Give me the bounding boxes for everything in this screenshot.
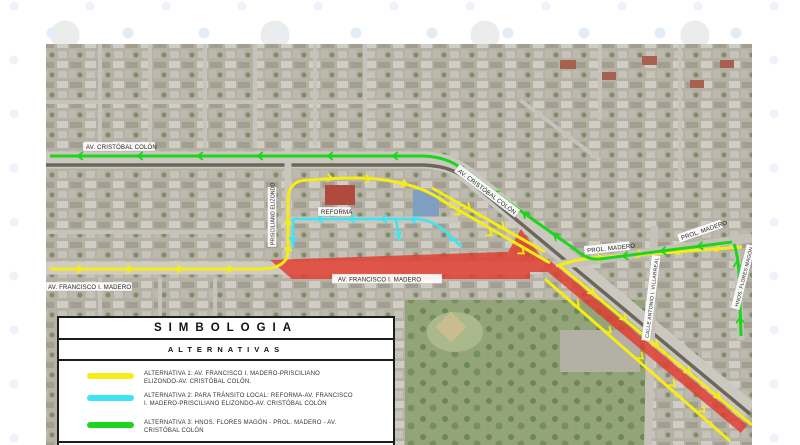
street-label-prisciliano-elizondo: PRISCILIANO ELIZONDO bbox=[268, 182, 277, 247]
street-label-reforma: REFORMA bbox=[318, 207, 352, 216]
street-label-av-cristobal-colon: AV. CRISTÓBAL COLÓN bbox=[83, 142, 157, 151]
svg-text:AV. FRANCISCO I. MADERO: AV. FRANCISCO I. MADERO bbox=[48, 285, 131, 291]
street-label-av-francisco-madero-west: AV. FRANCISCO I. MADERO bbox=[46, 282, 132, 291]
legend-item-label: ALTERNATIVA 1: AV. FRANCISCO I. MADERO-P… bbox=[144, 371, 354, 386]
svg-text:AV. FRANCISCO I. MADERO: AV. FRANCISCO I. MADERO bbox=[338, 278, 421, 284]
legend-title: SIMBOLOGIA bbox=[59, 318, 393, 340]
legend-item-label: ALTERNATIVA 2: PARA TRÁNSITO LOCAL: REFO… bbox=[144, 393, 354, 408]
legend-item-label: ALTERNATIVA 3: HNOS. FLORES MAGÓN - PROL… bbox=[144, 420, 354, 435]
svg-text:REFORMA: REFORMA bbox=[321, 210, 352, 216]
legend-subtitle: ALTERNATIVAS bbox=[59, 340, 393, 361]
page-background: AV. CRISTÓBAL COLÓN AV. FRANCISCO I. MAD… bbox=[0, 0, 800, 445]
legend-items: ALTERNATIVA 1: AV. FRANCISCO I. MADERO-P… bbox=[59, 361, 393, 445]
legend-swatch-green bbox=[87, 422, 134, 428]
legend-swatch-cyan bbox=[87, 395, 134, 401]
red-roof-building bbox=[325, 185, 355, 205]
svg-text:PRISCILIANO ELIZONDO: PRISCILIANO ELIZONDO bbox=[271, 182, 277, 245]
legend-item-alternativa-1: ALTERNATIVA 1: AV. FRANCISCO I. MADERO-P… bbox=[87, 371, 385, 386]
legend-panel: SIMBOLOGIA ALTERNATIVAS ALTERNATIVA 1: A… bbox=[57, 316, 395, 445]
legend-next-section-partial bbox=[57, 441, 395, 445]
svg-text:AV. CRISTÓBAL COLÓN: AV. CRISTÓBAL COLÓN bbox=[86, 144, 157, 151]
street-label-av-francisco-madero-closed: AV. FRANCISCO I. MADERO bbox=[332, 274, 442, 284]
legend-item-alternativa-2: ALTERNATIVA 2: PARA TRÁNSITO LOCAL: REFO… bbox=[87, 393, 385, 408]
legend-item-alternativa-3: ALTERNATIVA 3: HNOS. FLORES MAGÓN - PROL… bbox=[87, 420, 385, 435]
legend-swatch-yellow bbox=[87, 373, 134, 379]
